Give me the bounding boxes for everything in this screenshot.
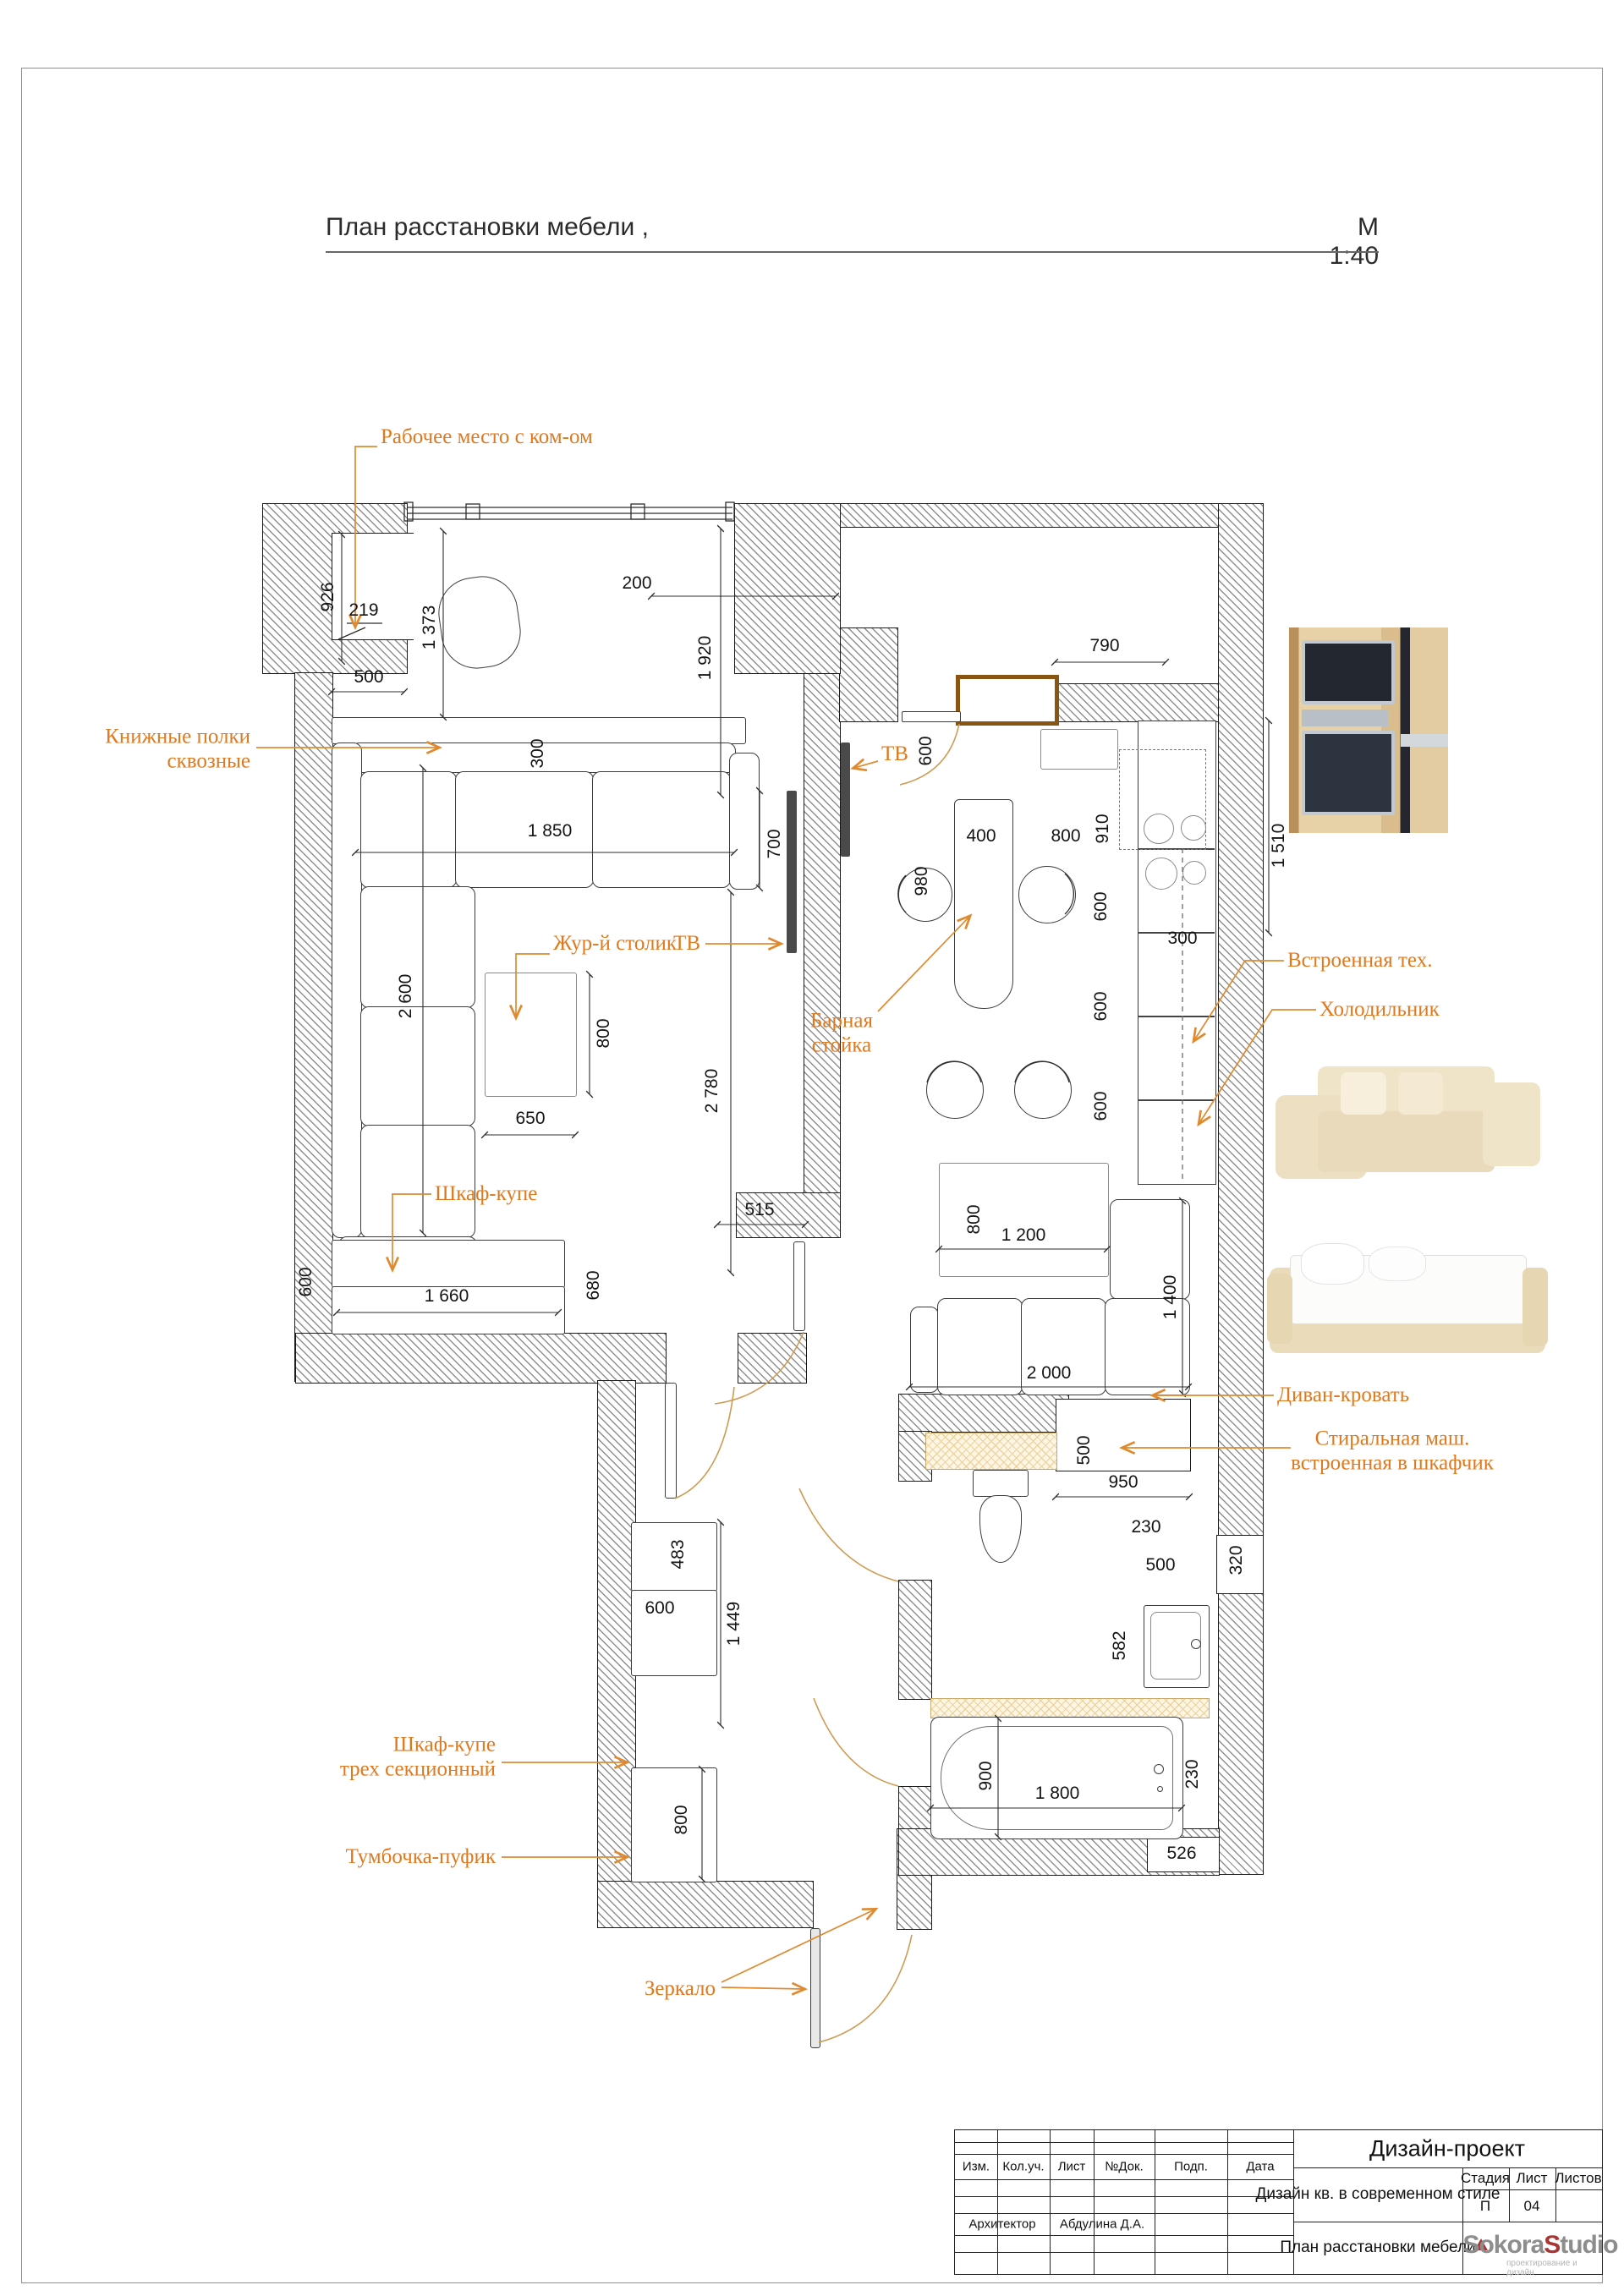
tb-object-title: Дизайн кв. в современном стиле bbox=[1256, 2185, 1501, 2204]
dimension-label: 230 bbox=[1131, 1517, 1160, 1537]
dimension-label: 2 600 bbox=[396, 974, 416, 1019]
dimension-label: 800 bbox=[1051, 826, 1080, 847]
title-block: Изм. Кол.уч. Лист №Док. Подп. Дата Архит… bbox=[954, 2129, 1603, 2275]
callout-label: ТВ bbox=[881, 743, 908, 767]
dimension-label: 910 bbox=[1093, 814, 1113, 843]
dimension-label: 2 780 bbox=[702, 1069, 722, 1114]
tb-stage-label: Стадия bbox=[1461, 2170, 1510, 2187]
dimension-label: 300 bbox=[528, 738, 548, 768]
dimension-label: 950 bbox=[1108, 1472, 1138, 1493]
dimension-label: 483 bbox=[668, 1539, 689, 1569]
dimension-label: 600 bbox=[916, 736, 936, 765]
dimension-label: 1 920 bbox=[695, 636, 716, 681]
dimension-label: 1 850 bbox=[528, 821, 573, 841]
logo-text: SokoraStudio bbox=[1462, 2231, 1617, 2260]
callout-label: Холодильник bbox=[1319, 998, 1440, 1022]
corner-sofa-photo bbox=[1267, 1047, 1551, 1208]
dimension-label: 2 000 bbox=[1027, 1363, 1072, 1384]
dimension-label: 790 bbox=[1089, 636, 1119, 656]
tb-col-izm: Изм. bbox=[963, 2160, 990, 2174]
tb-col-ndok: №Док. bbox=[1105, 2160, 1144, 2174]
dimension-label: 980 bbox=[912, 866, 932, 896]
tb-project-title: Дизайн-проект bbox=[1369, 2136, 1525, 2162]
dimension-label: 1 373 bbox=[420, 606, 440, 650]
callout-label: Барная стойка bbox=[810, 1010, 873, 1058]
dimension-label: 600 bbox=[1091, 1091, 1111, 1121]
dimension-label: 1 200 bbox=[1001, 1225, 1046, 1246]
dimension-label: 500 bbox=[354, 667, 383, 688]
dimension-label: 200 bbox=[622, 573, 651, 594]
sofa-bed-photo bbox=[1267, 1228, 1548, 1380]
dimension-label: 500 bbox=[1145, 1555, 1175, 1575]
dimension-label: 526 bbox=[1166, 1844, 1196, 1864]
tb-col-podp: Подп. bbox=[1174, 2160, 1208, 2174]
dimension-label: 600 bbox=[296, 1267, 316, 1296]
callout-label: ТВ bbox=[673, 932, 700, 956]
callout-label: Жур-й столик bbox=[553, 932, 677, 956]
drawing-sheet: { "page": { "title": "План расстановки м… bbox=[0, 0, 1624, 2296]
dimension-label: 219 bbox=[348, 600, 378, 621]
callout-label: Зеркало bbox=[645, 1977, 716, 2002]
tb-sheet-value: 04 bbox=[1524, 2198, 1540, 2215]
dimension-label: 650 bbox=[515, 1109, 545, 1129]
dimension-label: 800 bbox=[964, 1204, 985, 1234]
dimension-label: 300 bbox=[1167, 929, 1197, 949]
tb-architect-label: Архитектор bbox=[968, 2217, 1035, 2232]
dimension-label: 500 bbox=[1074, 1435, 1095, 1465]
tb-col-list: Лист bbox=[1058, 2160, 1086, 2174]
dimension-label: 600 bbox=[1091, 891, 1111, 921]
callout-label: Шкаф-купе трех секционный bbox=[340, 1734, 496, 1782]
callout-label: Диван-кровать bbox=[1277, 1384, 1409, 1408]
dimension-label: 900 bbox=[976, 1761, 996, 1790]
tb-stage-value: П bbox=[1480, 2198, 1490, 2215]
tb-col-koluch: Кол.уч. bbox=[1002, 2160, 1044, 2174]
dimension-label: 600 bbox=[1091, 991, 1111, 1021]
dimension-label: 1 660 bbox=[425, 1286, 469, 1307]
callout-label: Тумбочка-пуфик bbox=[346, 1845, 496, 1870]
dimension-label: 1 449 bbox=[724, 1602, 744, 1647]
dimension-label: 680 bbox=[584, 1270, 604, 1300]
dimension-label: 800 bbox=[672, 1805, 692, 1834]
dimension-label: 1 800 bbox=[1035, 1784, 1080, 1804]
dimension-label: 320 bbox=[1226, 1545, 1247, 1575]
dimension-label: 582 bbox=[1110, 1630, 1130, 1660]
dimension-label: 400 bbox=[966, 826, 996, 847]
dimension-label: 926 bbox=[318, 582, 338, 611]
tb-col-data: Дата bbox=[1246, 2160, 1274, 2174]
callout-label: Книжные полки сквозные bbox=[105, 726, 250, 774]
callout-label: Встроенная тех. bbox=[1287, 949, 1432, 973]
tb-sheets-label: Листов bbox=[1555, 2170, 1601, 2187]
dimension-label: 600 bbox=[645, 1598, 674, 1619]
dimension-label: 515 bbox=[744, 1200, 774, 1220]
tb-architect-name: Абдулина Д.А. bbox=[1060, 2217, 1144, 2232]
callout-label: Рабочее место с ком-ом bbox=[381, 425, 593, 450]
dimension-label: 230 bbox=[1182, 1759, 1203, 1789]
dimension-label: 700 bbox=[765, 829, 785, 858]
tb-sheet-label: Лист bbox=[1517, 2170, 1548, 2187]
appliances-photo bbox=[1289, 627, 1448, 833]
dimension-label: 800 bbox=[594, 1018, 614, 1048]
logo-tagline: проектирование и дизайн bbox=[1506, 2259, 1602, 2277]
tb-drawing-name: План расстановки мебели bbox=[1280, 2238, 1475, 2257]
callout-label: Шкаф-купе bbox=[435, 1182, 537, 1207]
callout-label: Стиральная маш. встроенная в шкафчик bbox=[1291, 1427, 1494, 1476]
dimension-label: 1 510 bbox=[1269, 824, 1289, 869]
dimension-label: 1 400 bbox=[1160, 1275, 1181, 1320]
